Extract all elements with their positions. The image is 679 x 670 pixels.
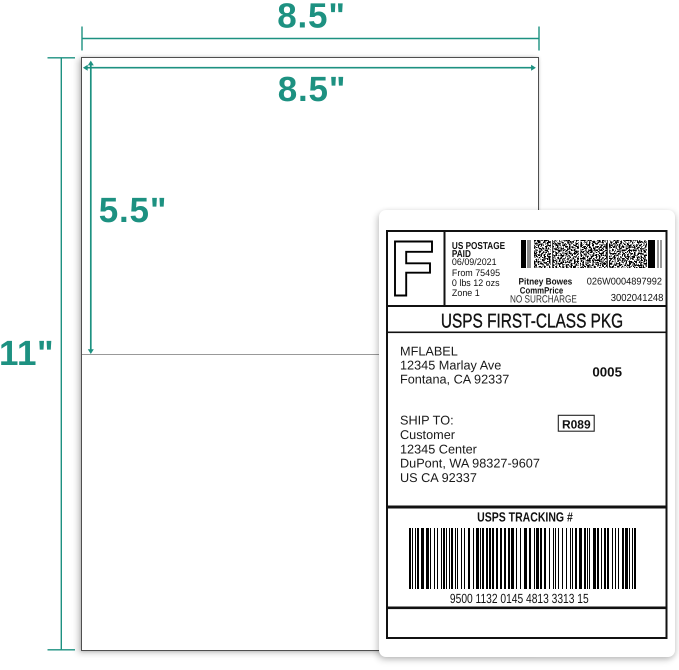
svg-text:8.5": 8.5"	[277, 0, 345, 35]
svg-text:9500 1132 0145 4813 3313 15: 9500 1132 0145 4813 3313 15	[450, 591, 589, 606]
svg-text:5.5": 5.5"	[99, 191, 167, 230]
svg-text:US CA 92337: US CA 92337	[400, 471, 477, 485]
svg-text:Zone 1: Zone 1	[452, 288, 480, 299]
svg-text:USPS TRACKING #: USPS TRACKING #	[477, 510, 573, 525]
svg-text:NO SURCHARGE: NO SURCHARGE	[510, 294, 577, 306]
svg-text:026W0004897992: 026W0004897992	[587, 277, 662, 288]
svg-text:MFLABEL: MFLABEL	[400, 344, 458, 358]
svg-text:DuPont, WA 98327-9607: DuPont, WA 98327-9607	[400, 457, 540, 471]
svg-text:USPS FIRST-CLASS PKG: USPS FIRST-CLASS PKG	[441, 310, 623, 332]
svg-text:Fontana, CA 92337: Fontana, CA 92337	[400, 372, 509, 386]
svg-text:11": 11"	[0, 334, 54, 373]
svg-text:12345 Marlay Ave: 12345 Marlay Ave	[400, 358, 501, 372]
svg-text:3002041248: 3002041248	[611, 293, 664, 304]
svg-text:8.5": 8.5"	[278, 70, 346, 109]
svg-text:Customer: Customer	[400, 428, 456, 442]
svg-text:12345 Center: 12345 Center	[400, 442, 478, 456]
svg-text:R089: R089	[562, 417, 591, 431]
svg-text:0005: 0005	[592, 365, 622, 380]
svg-text:06/09/2021: 06/09/2021	[452, 257, 497, 268]
svg-text:SHIP TO:: SHIP TO:	[400, 414, 454, 428]
